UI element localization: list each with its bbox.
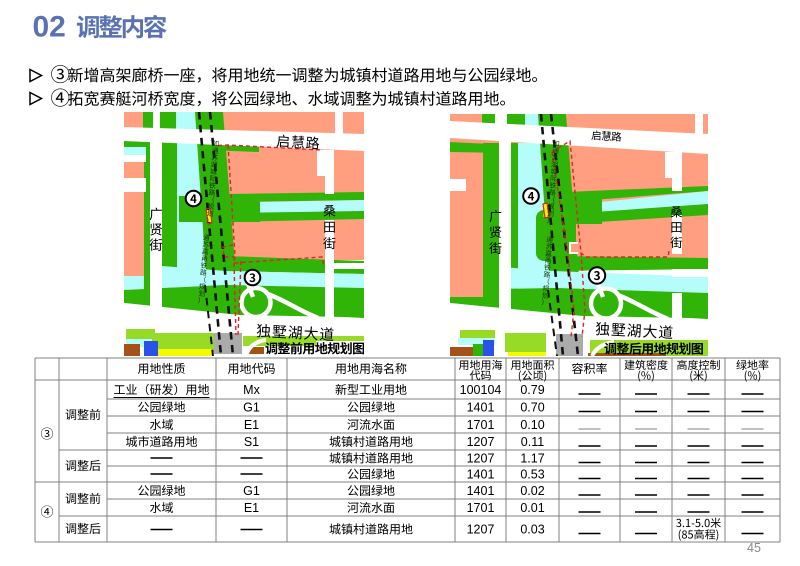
svg-text:0.01: 0.01 <box>520 501 544 515</box>
svg-text:1.17: 1.17 <box>520 452 544 466</box>
svg-text:100104: 100104 <box>460 383 502 397</box>
svg-text:S1: S1 <box>244 435 259 449</box>
svg-text:1401: 1401 <box>467 401 495 415</box>
svg-text:1207: 1207 <box>467 435 495 449</box>
svg-text:0.11: 0.11 <box>521 435 544 449</box>
svg-text:1401: 1401 <box>467 468 495 482</box>
svg-text:0.03: 0.03 <box>520 523 544 537</box>
svg-text:1207: 1207 <box>467 452 495 466</box>
svg-text:0.53: 0.53 <box>520 468 544 482</box>
svg-text:1701: 1701 <box>467 418 495 432</box>
svg-text:E1: E1 <box>244 501 259 515</box>
svg-text:G1: G1 <box>243 484 260 498</box>
svg-text:1701: 1701 <box>467 501 495 515</box>
svg-text:0.79: 0.79 <box>520 383 544 397</box>
svg-text:0.70: 0.70 <box>520 401 544 415</box>
svg-text:0.02: 0.02 <box>520 484 544 498</box>
svg-text:1207: 1207 <box>467 523 495 537</box>
svg-text:0.10: 0.10 <box>520 418 544 432</box>
svg-text:45: 45 <box>747 541 761 555</box>
svg-text:Mx: Mx <box>243 383 260 397</box>
svg-text:G1: G1 <box>243 401 260 415</box>
svg-text:02: 02 <box>33 11 66 44</box>
svg-text:1401: 1401 <box>467 484 495 498</box>
svg-text:E1: E1 <box>244 418 259 432</box>
